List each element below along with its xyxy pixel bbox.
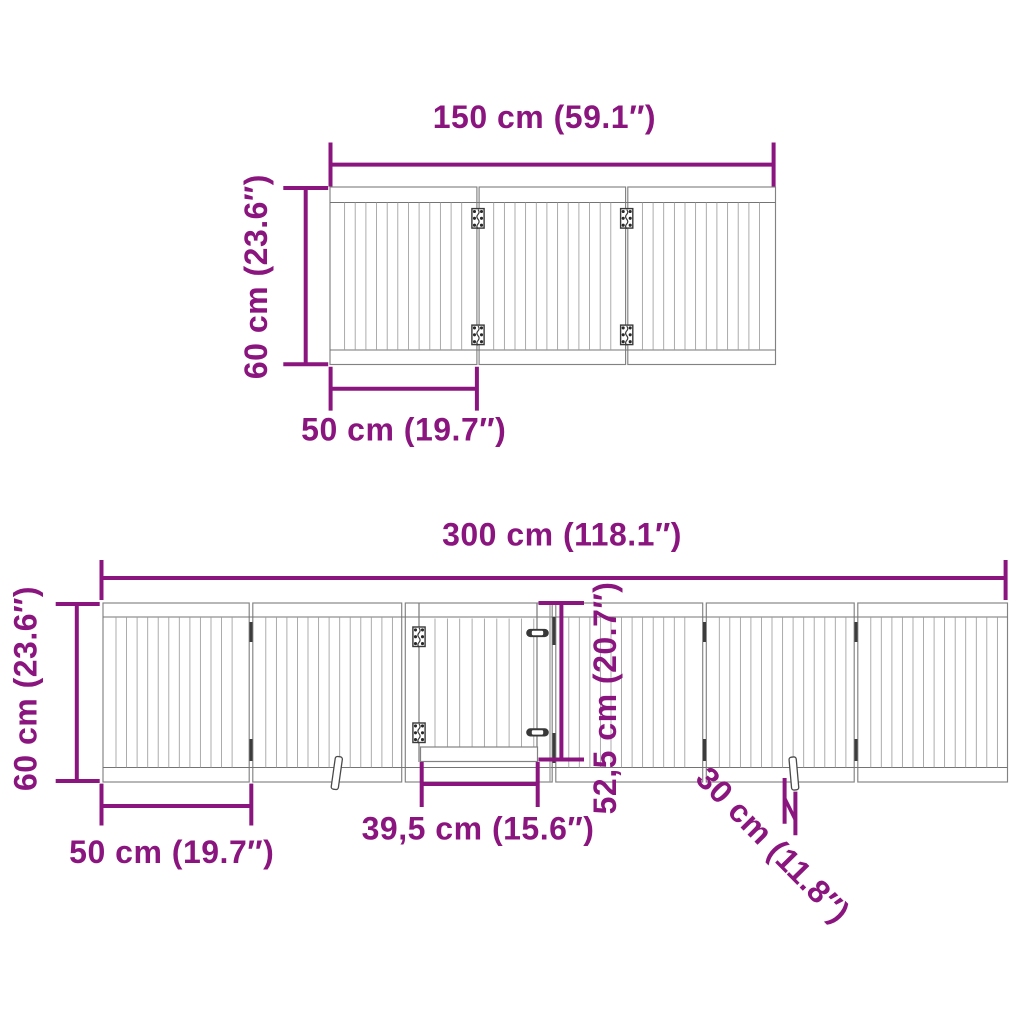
svg-text:60 cm (23.6″): 60 cm (23.6″) <box>238 174 274 379</box>
svg-text:50 cm (19.7″): 50 cm (19.7″) <box>301 412 506 448</box>
svg-text:50 cm (19.7″): 50 cm (19.7″) <box>69 834 274 870</box>
svg-text:52,5 cm (20.7″): 52,5 cm (20.7″) <box>587 582 623 815</box>
svg-text:150 cm (59.1″): 150 cm (59.1″) <box>433 99 656 135</box>
svg-text:39,5 cm (15.6″): 39,5 cm (15.6″) <box>362 811 595 847</box>
svg-text:60 cm (23.6″): 60 cm (23.6″) <box>8 586 44 791</box>
svg-text:300 cm (118.1″): 300 cm (118.1″) <box>442 517 682 553</box>
